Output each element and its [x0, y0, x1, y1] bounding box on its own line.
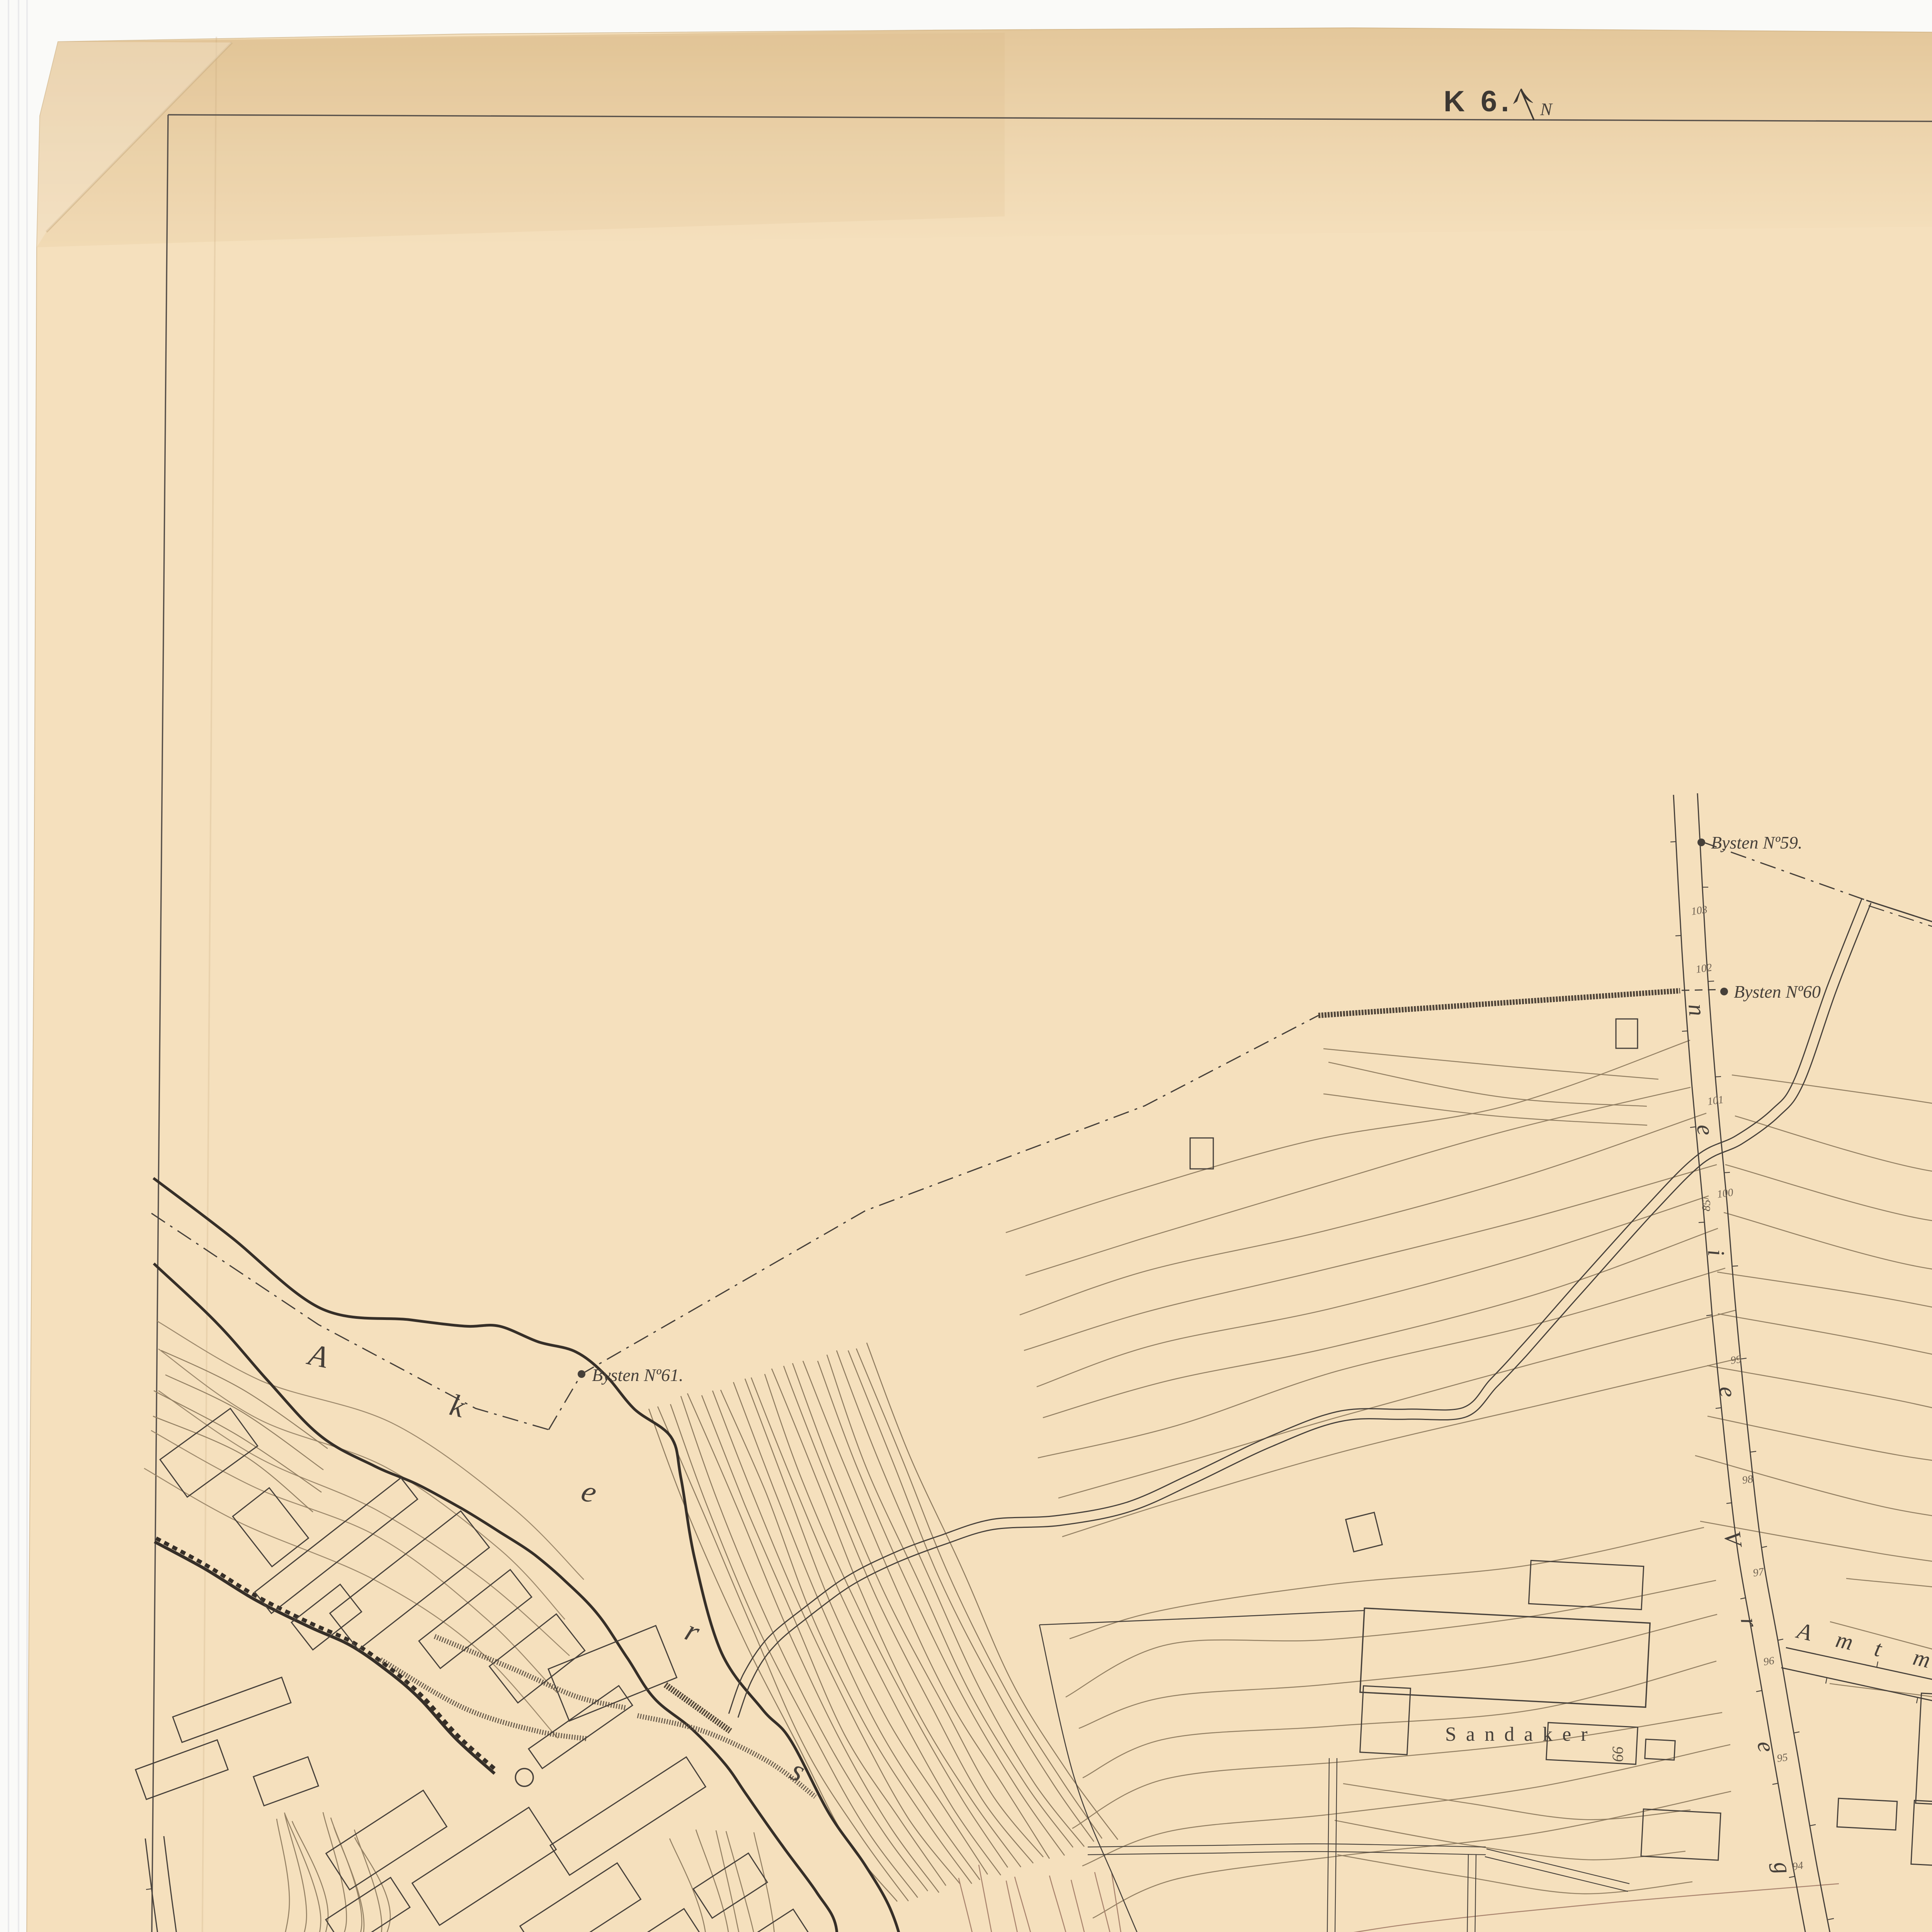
svg-text:101: 101	[1707, 1094, 1725, 1108]
svg-text:103: 103	[1690, 903, 1708, 918]
svg-text:98: 98	[1742, 1473, 1754, 1486]
svg-text:100: 100	[1716, 1186, 1734, 1201]
svg-text:95: 95	[1776, 1751, 1789, 1765]
svg-text:99: 99	[1730, 1353, 1742, 1367]
svg-text:94: 94	[1792, 1859, 1804, 1873]
svg-text:S a n d a k e r: S a n d a k e r	[1445, 1723, 1590, 1745]
svg-text:Bysten Nº59.: Bysten Nº59.	[1711, 833, 1803, 852]
svg-text:Bysten Nº61.: Bysten Nº61.	[592, 1365, 684, 1385]
svg-text:Bysten Nº60: Bysten Nº60	[1734, 982, 1821, 1002]
svg-text:96: 96	[1763, 1655, 1775, 1668]
svg-text:97: 97	[1752, 1566, 1765, 1579]
svg-text:66: 66	[1609, 1747, 1626, 1762]
svg-text:85ʲ: 85ʲ	[1700, 1197, 1713, 1211]
svg-text:102: 102	[1695, 961, 1713, 976]
svg-text:n: n	[1683, 1003, 1710, 1017]
svg-text:N: N	[1540, 99, 1553, 119]
svg-text:K 6.: K 6.	[1444, 85, 1513, 118]
